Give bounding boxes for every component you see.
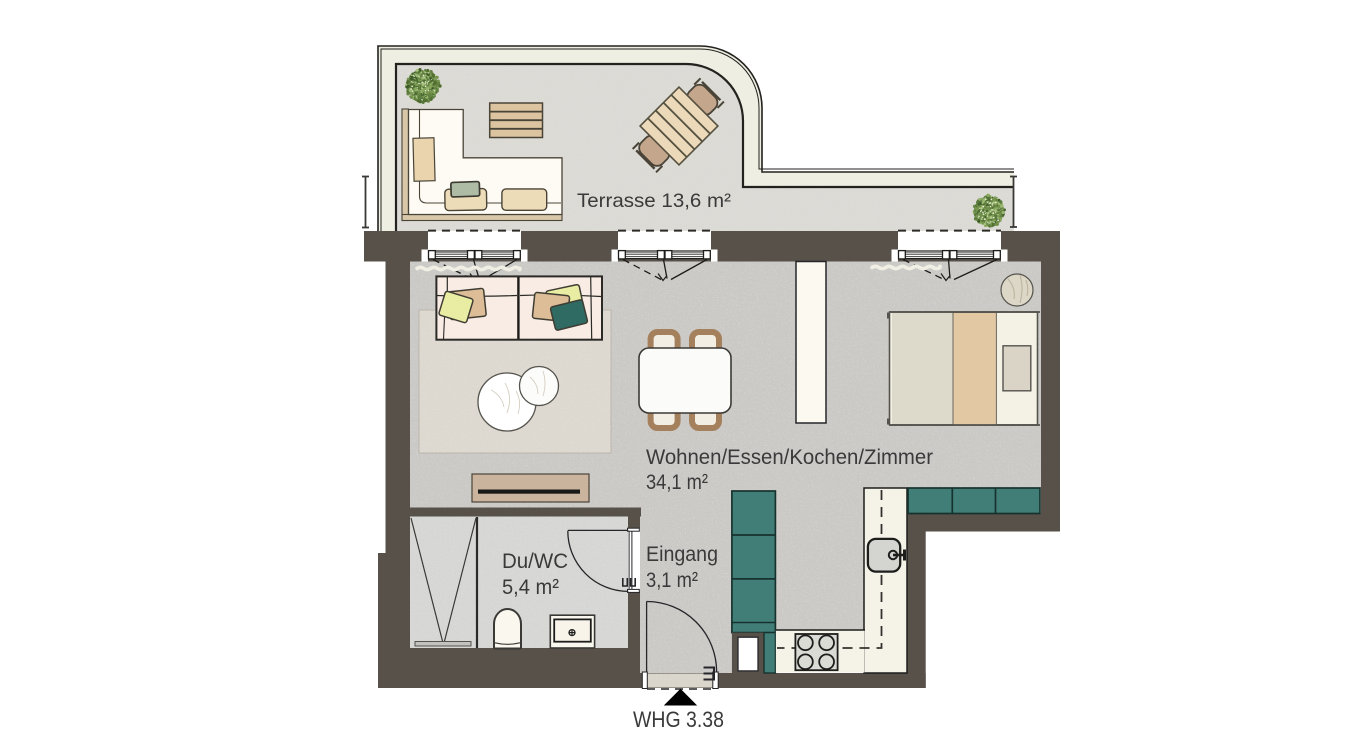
- svg-text:WHG 3.38: WHG 3.38: [633, 707, 724, 732]
- svg-text:3,1 m²: 3,1 m²: [646, 568, 698, 592]
- svg-text:Terrasse 13,6 m²: Terrasse 13,6 m²: [577, 190, 732, 212]
- svg-text:34,1 m²: 34,1 m²: [646, 470, 708, 494]
- svg-text:Wohnen/Essen/Kochen/Zimmer: Wohnen/Essen/Kochen/Zimmer: [646, 445, 933, 469]
- svg-text:Du/WC: Du/WC: [502, 549, 568, 573]
- svg-text:5,4 m²: 5,4 m²: [502, 575, 559, 599]
- svg-text:Eingang: Eingang: [646, 542, 718, 566]
